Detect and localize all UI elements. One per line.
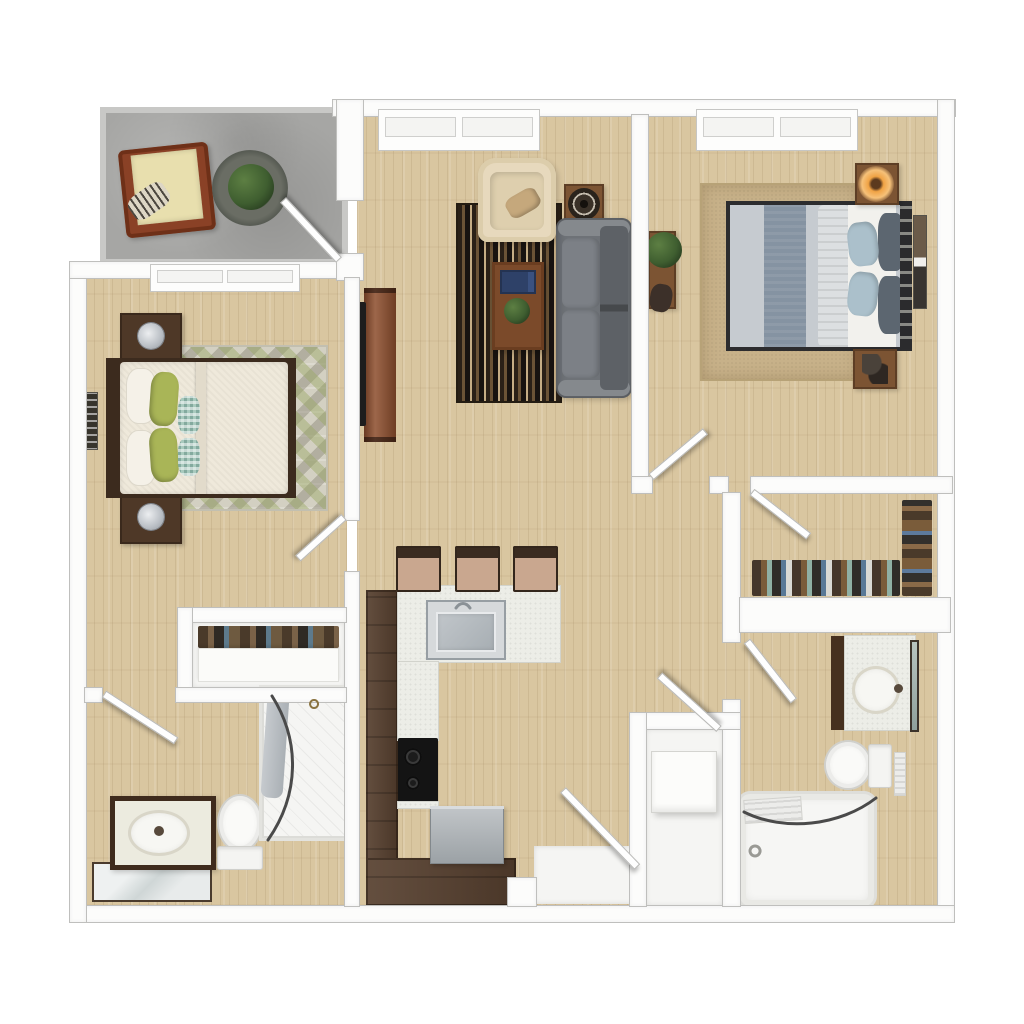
wall-left <box>70 262 86 922</box>
bath1-toilet-tank <box>217 846 263 870</box>
wall-hall-b <box>710 477 728 493</box>
wall-bath1-top <box>176 688 346 702</box>
speaker <box>568 188 600 220</box>
bed1-pillow-teal-bottom <box>178 438 200 476</box>
coffee-table-plant <box>504 298 530 324</box>
wall-living-west-upper <box>337 100 363 200</box>
bath2-sink <box>852 666 900 714</box>
utility-appliance-box <box>652 752 716 812</box>
stainless-appliance <box>430 806 504 864</box>
wall-bed1-east-upper <box>345 278 359 520</box>
bath2-towel-bar <box>894 752 906 796</box>
bed2-desk-plant <box>646 232 682 268</box>
bed2-duvet-roll <box>818 205 850 347</box>
bath2-faucet <box>894 684 903 693</box>
kitchen-counter-left <box>398 662 438 740</box>
bed2-lamp-glow <box>858 166 894 202</box>
closet1-shoe-row <box>198 626 339 648</box>
cooktop <box>398 738 438 804</box>
wall-right <box>938 100 954 922</box>
bar-stool-3 <box>513 546 558 592</box>
bar-stool-1 <box>396 546 441 592</box>
bar-stool-2 <box>455 546 500 592</box>
closet2-shoes-bottom <box>752 560 900 596</box>
bathtub-towel <box>743 796 803 824</box>
kitchen-cabinet-row <box>366 858 516 906</box>
wall-bottom <box>70 906 954 922</box>
coffee-table-book <box>500 270 536 294</box>
wall-hall-a <box>632 477 652 493</box>
sofa-seat-bottom <box>562 310 600 378</box>
closet2-shoes-right <box>902 500 932 596</box>
bed2-headboard <box>900 203 912 349</box>
tv-console <box>364 288 396 442</box>
window-bedroom1 <box>150 264 300 292</box>
bath2-toilet-tank <box>868 744 892 788</box>
sofa-back-cushions <box>600 226 628 390</box>
wall-entry-step <box>508 878 536 906</box>
wall-bed1-east-lower <box>345 572 359 906</box>
closet1-shelf <box>198 648 339 682</box>
bed1-lamp-top <box>138 323 164 349</box>
wall-bath2-west <box>723 700 740 906</box>
bed2-nightstand-decor <box>862 354 888 384</box>
wall-closet2-bottom <box>740 598 950 632</box>
window-living <box>378 109 540 151</box>
burner-small <box>406 776 420 790</box>
bed2-wall-art <box>914 216 926 308</box>
burner-large <box>404 748 422 766</box>
bath2-mirror <box>910 640 919 732</box>
floor-plan <box>0 0 1024 1024</box>
wall-hall-c <box>751 477 952 493</box>
bed2-duvet-band <box>764 205 806 347</box>
sofa-seat-top <box>562 238 600 308</box>
wall-closet1-top <box>178 608 346 622</box>
bed2-pillow-blue-top <box>846 221 880 268</box>
bath1-toilet-bowl <box>219 796 261 850</box>
bath1-faucet <box>154 826 164 836</box>
bed1-wall-art <box>86 392 98 450</box>
bed1-pillow-green-top <box>148 371 180 427</box>
wall-bed2-west <box>632 115 648 479</box>
wall-closet2-west <box>723 493 740 642</box>
bath2-toilet-bowl <box>826 742 870 788</box>
bed1-lamp-bottom <box>138 504 164 530</box>
bath2-vanity-side <box>831 636 845 730</box>
wall-utility-top <box>630 713 740 729</box>
balcony-plant <box>228 164 274 210</box>
bed1-pillow-teal-top <box>178 396 200 434</box>
wall-closet1-left <box>178 608 192 690</box>
wall-bath1-stub <box>85 688 102 702</box>
bed1-pillow-green-bottom <box>148 427 180 483</box>
window-bedroom2 <box>696 109 858 151</box>
island-sink-basin <box>436 612 496 652</box>
wall-utility-west <box>630 713 646 906</box>
